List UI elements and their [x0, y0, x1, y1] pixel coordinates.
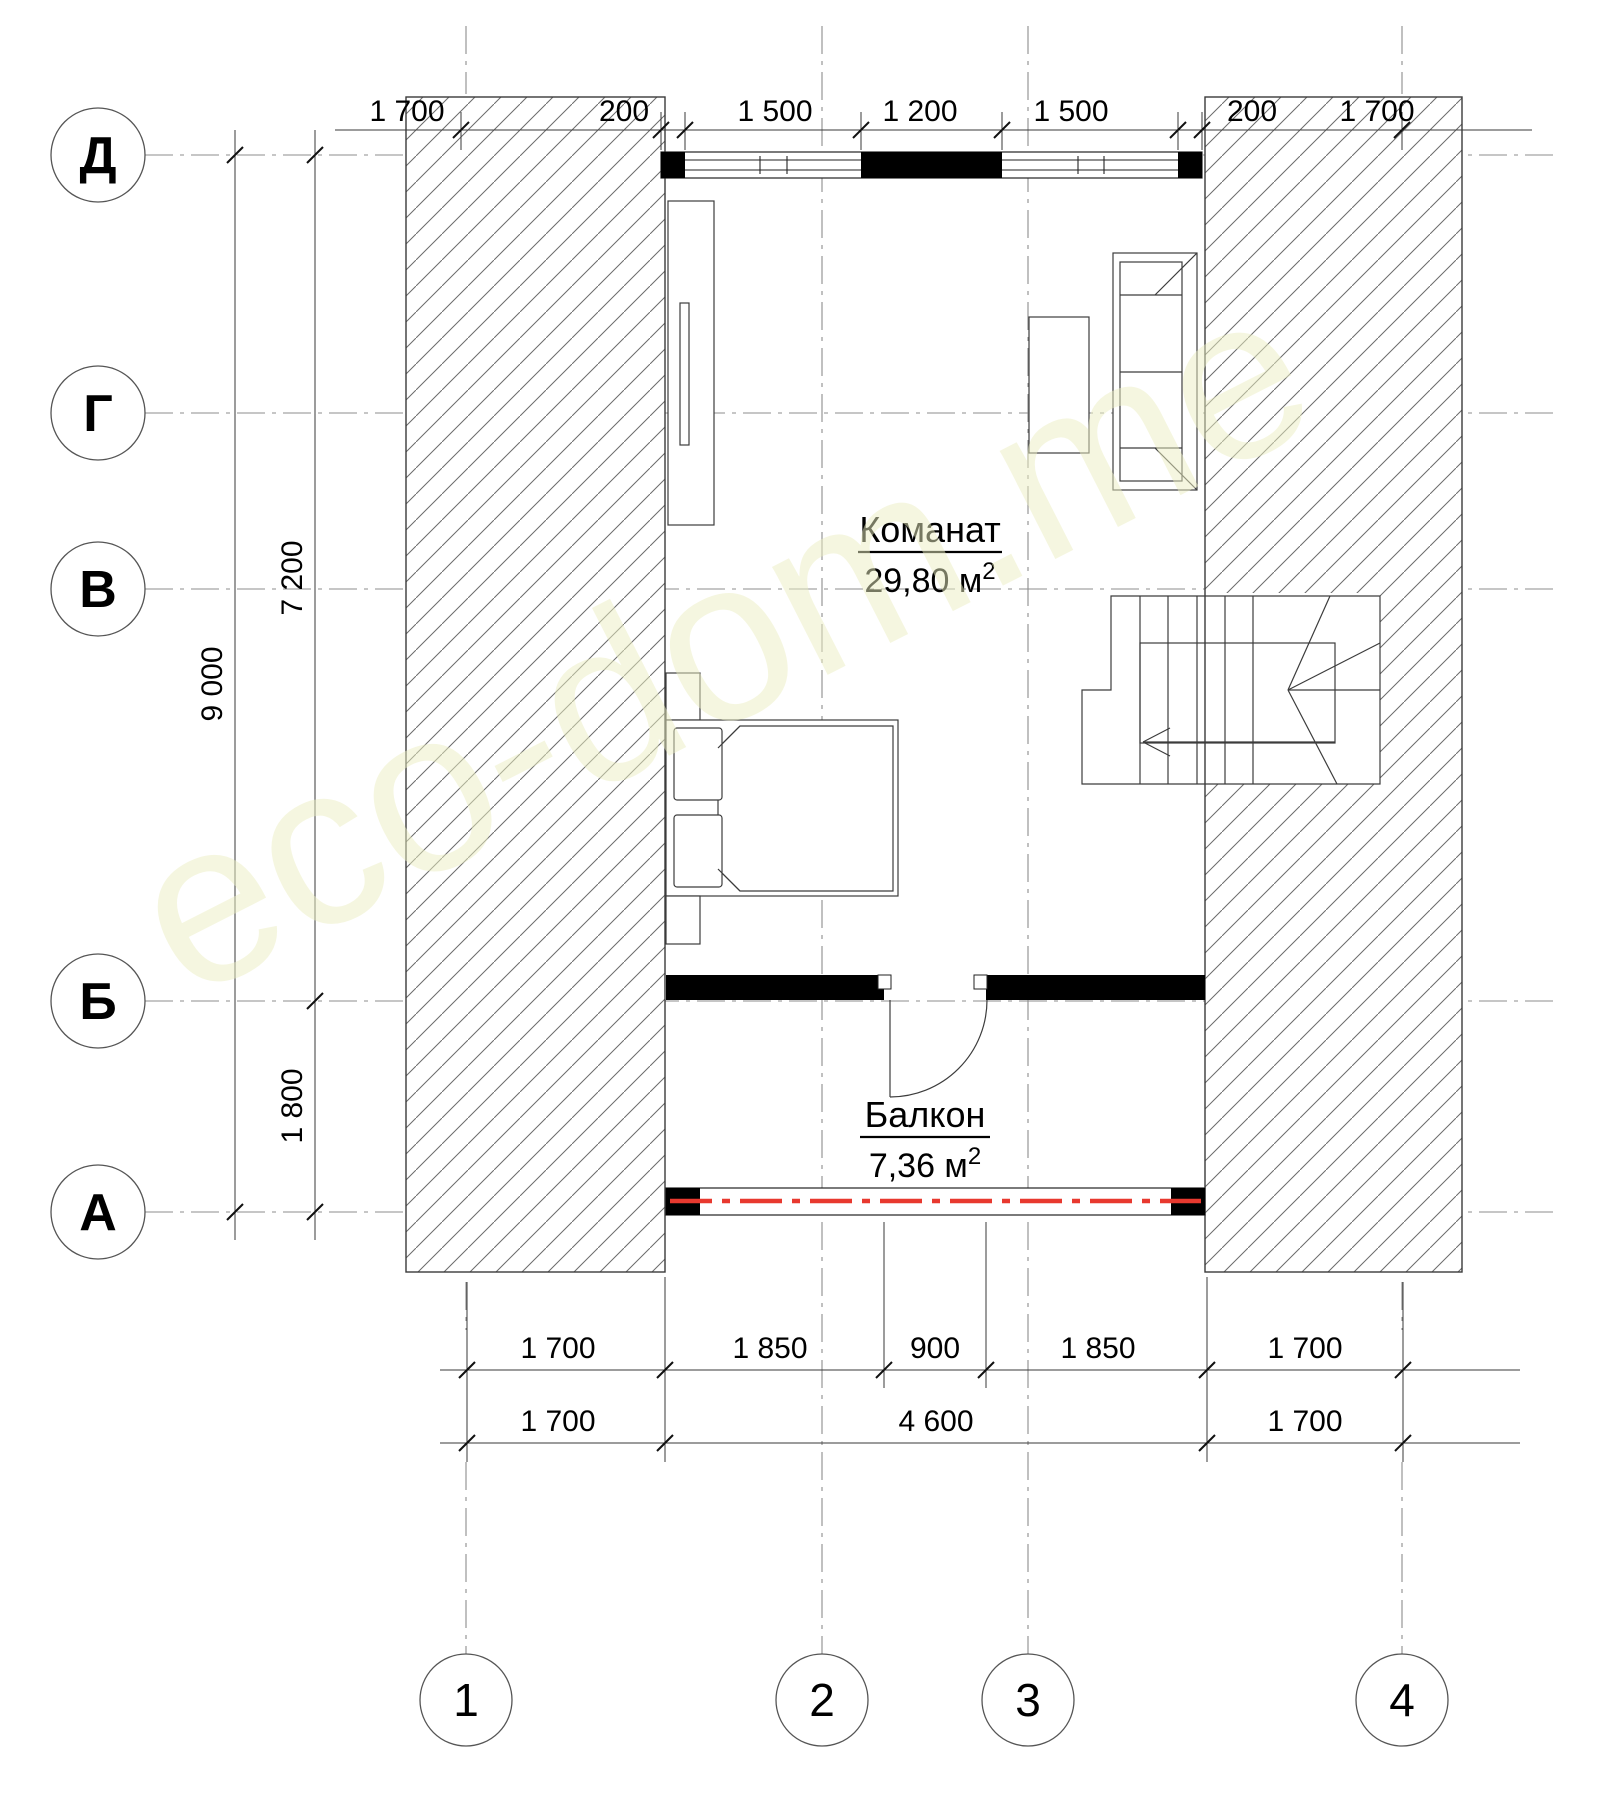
axis-bubble-g-label: Г — [83, 385, 112, 443]
dim-label: 900 — [910, 1332, 960, 1365]
axis-bubbles-left: Д Г В Б А — [51, 108, 145, 1259]
bottom-dim-labels: 1 700 1 850 900 1 850 1 700 1 700 4 600 … — [520, 1332, 1342, 1438]
window-wall — [661, 152, 1202, 178]
dim-label: 7 200 — [276, 540, 309, 615]
balcony-door — [890, 1000, 987, 1097]
balcony-wall — [666, 975, 1205, 1097]
axis-bubble-d-label: Д — [79, 127, 116, 185]
axis-bubble-a-label: А — [79, 1184, 117, 1242]
dim-label: 1 700 — [369, 95, 444, 128]
axis-bubble-1-label: 1 — [453, 1674, 479, 1726]
dim-label: 1 200 — [882, 95, 957, 128]
nightstand-bottom — [666, 896, 700, 944]
dim-label: 1 800 — [276, 1068, 309, 1143]
dim-label: 1 850 — [732, 1332, 807, 1365]
dim-label: 9 000 — [196, 646, 229, 721]
pillow — [674, 815, 722, 887]
door-jamb-left — [878, 975, 891, 989]
door-jamb-right — [974, 975, 987, 989]
floor-plan-drawing: 1 700 200 1 500 1 200 1 500 200 1 700 9 … — [0, 0, 1599, 1800]
dim-label: 1 700 — [1267, 1405, 1342, 1438]
axis-bubble-v-label: В — [79, 561, 117, 619]
dim-label: 200 — [1227, 95, 1277, 128]
balcony-railing — [666, 1188, 1205, 1215]
dim-label: 1 700 — [520, 1405, 595, 1438]
watermark-text: eco-dom.me — [92, 236, 1348, 1045]
right-roof-hatch-strip — [1380, 593, 1462, 784]
balcony-area: 7,36 м2 — [869, 1143, 981, 1185]
dim-label: 1 500 — [1033, 95, 1108, 128]
dim-label: 200 — [599, 95, 649, 128]
axis-bubbles-bottom: 1 2 3 4 — [420, 1654, 1448, 1746]
axis-bubble-2-label: 2 — [809, 1674, 835, 1726]
wardrobe — [668, 201, 714, 525]
axis-bubble-3-label: 3 — [1015, 1674, 1041, 1726]
balcony-name: Балкон — [865, 1094, 986, 1135]
dim-label: 1 700 — [1339, 95, 1414, 128]
wall-segment-right — [986, 975, 1205, 1000]
dim-label: 1 700 — [520, 1332, 595, 1365]
dim-label: 1 850 — [1060, 1332, 1135, 1365]
stair-notch — [1206, 594, 1379, 783]
axis-bubble-4-label: 4 — [1389, 1674, 1415, 1726]
left-dim-ticks — [227, 147, 323, 1220]
door-swing-arc — [890, 1000, 987, 1097]
floor-plan-page: 1 700 200 1 500 1 200 1 500 200 1 700 9 … — [0, 0, 1599, 1800]
right-roof-hatch-lower — [1205, 784, 1462, 1272]
wall-segment-left — [666, 975, 884, 1000]
wall-jamb-left — [661, 152, 685, 178]
wall-jamb-right — [1178, 152, 1202, 178]
dim-label: 1 500 — [737, 95, 812, 128]
dim-label: 4 600 — [898, 1405, 973, 1438]
axis-bubble-b-label: Б — [79, 973, 116, 1031]
wall-pier-center — [861, 152, 1002, 178]
dim-label: 1 700 — [1267, 1332, 1342, 1365]
